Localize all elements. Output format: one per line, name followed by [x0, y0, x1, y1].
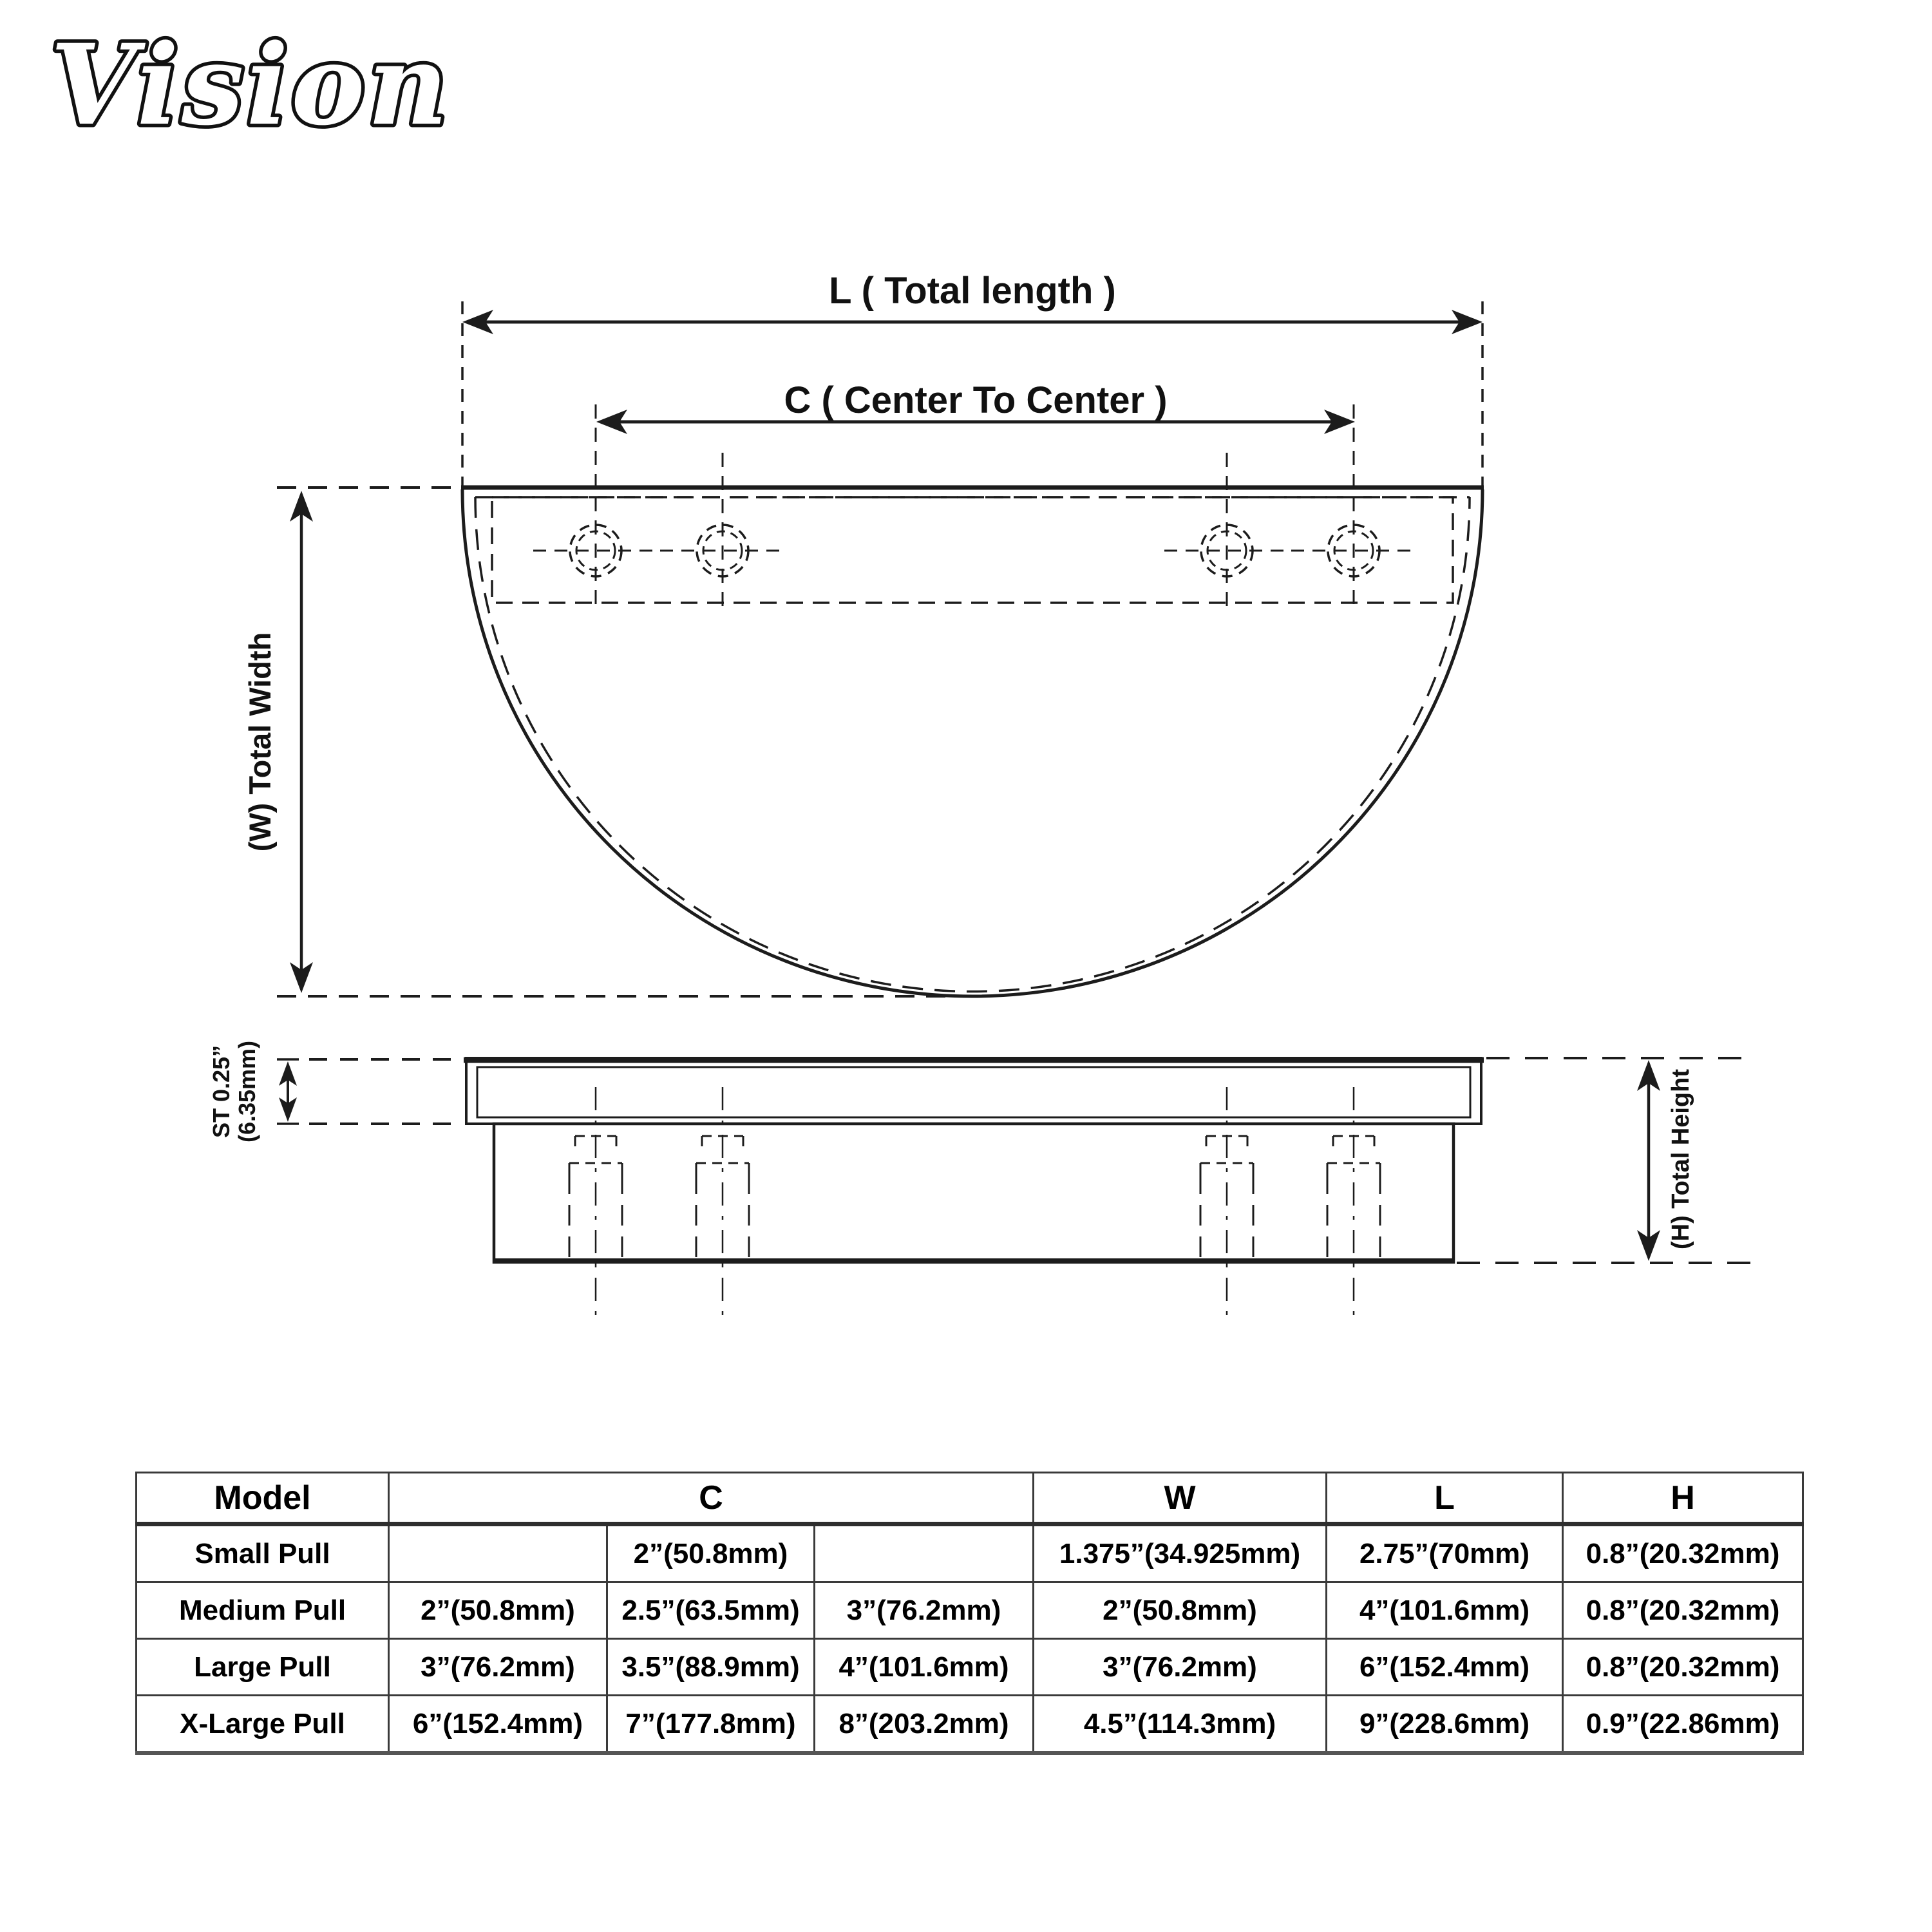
value-c3: 4”(101.6mm) [815, 1639, 1034, 1696]
value-w: 3”(76.2mm) [1034, 1639, 1327, 1696]
screw-holes [533, 404, 1416, 612]
dim-plate-thickness: ST 0.25” (6.35mm) [208, 1041, 464, 1142]
value-c2: 7”(177.8mm) [607, 1696, 815, 1754]
header-c: C [389, 1473, 1034, 1524]
model-name: Large Pull [137, 1639, 389, 1696]
table-row-large-pull: Large Pull 3”(76.2mm) 3.5”(88.9mm) 4”(10… [137, 1639, 1803, 1696]
screw-section [696, 1087, 749, 1315]
value-w: 4.5”(114.3mm) [1034, 1696, 1327, 1754]
value-w: 2”(50.8mm) [1034, 1582, 1327, 1639]
dim-total-height: (H) Total Height [1457, 1058, 1750, 1263]
spec-table-container: Model C W L H Small Pull 2”(50.8mm) 1.37… [135, 1472, 1804, 1755]
screw-hole [1164, 453, 1289, 612]
value-l: 2.75”(70mm) [1327, 1524, 1563, 1582]
value-h: 0.8”(20.32mm) [1563, 1524, 1803, 1582]
value-h: 0.9”(22.86mm) [1563, 1696, 1803, 1754]
dim-plate-thickness-label-line2: (6.35mm) [234, 1041, 260, 1142]
header-model: Model [137, 1473, 389, 1524]
dim-total-width-label: (W) Total Width [243, 632, 277, 852]
screw-hole [1291, 404, 1416, 612]
value-l: 6”(152.4mm) [1327, 1639, 1563, 1696]
model-name: Medium Pull [137, 1582, 389, 1639]
header-h: H [1563, 1473, 1803, 1524]
table-row-medium-pull: Medium Pull 2”(50.8mm) 2.5”(63.5mm) 3”(7… [137, 1582, 1803, 1639]
brand-logo: Vision [50, 19, 451, 150]
table-row-small-pull: Small Pull 2”(50.8mm) 1.375”(34.925mm) 2… [137, 1524, 1803, 1582]
dim-total-length: L ( Total length ) [462, 270, 1482, 487]
dim-total-length-label: L ( Total length ) [829, 270, 1116, 312]
table-row-xlarge-pull: X-Large Pull 6”(152.4mm) 7”(177.8mm) 8”(… [137, 1696, 1803, 1754]
page: { "logo": "Vision", "front_view": { "dim… [0, 0, 1932, 1932]
value-c1: 6”(152.4mm) [389, 1696, 607, 1754]
value-w: 1.375”(34.925mm) [1034, 1524, 1327, 1582]
dim-center-to-center: C ( Center To Center ) [596, 379, 1355, 434]
screw-section [569, 1087, 622, 1315]
value-c1: 3”(76.2mm) [389, 1639, 607, 1696]
screw-section [1200, 1087, 1253, 1315]
dimensions-table: Model C W L H Small Pull 2”(50.8mm) 1.37… [135, 1472, 1804, 1755]
value-c1 [389, 1524, 607, 1582]
side-view: ST 0.25” (6.35mm) (H) Total Height [208, 1041, 1750, 1315]
value-h: 0.8”(20.32mm) [1563, 1582, 1803, 1639]
value-c2: 2.5”(63.5mm) [607, 1582, 815, 1639]
value-c2: 3.5”(88.9mm) [607, 1639, 815, 1696]
dim-total-height-label: (H) Total Height [1667, 1069, 1694, 1249]
front-view: L ( Total length ) C ( Center To Center … [243, 270, 1484, 996]
pull-front-outline [461, 488, 1484, 996]
technical-drawing: Vision L ( Total length ) C ( Center To … [0, 0, 1932, 1472]
mounting-zone-outline [492, 497, 1453, 603]
model-name: X-Large Pull [137, 1696, 389, 1754]
value-h: 0.8”(20.32mm) [1563, 1639, 1803, 1696]
screw-section [1327, 1087, 1380, 1315]
value-l: 9”(228.6mm) [1327, 1696, 1563, 1754]
value-c2: 2”(50.8mm) [607, 1524, 815, 1582]
dim-total-width: (W) Total Width [243, 488, 962, 996]
mounting-base [493, 1124, 1455, 1262]
dim-plate-thickness-label-line1: ST 0.25” [208, 1045, 234, 1138]
value-c1: 2”(50.8mm) [389, 1582, 607, 1639]
screw-hole [660, 453, 785, 612]
header-l: L [1327, 1473, 1563, 1524]
dim-center-to-center-label: C ( Center To Center ) [784, 379, 1167, 421]
header-w: W [1034, 1473, 1327, 1524]
pull-side-plate [464, 1058, 1484, 1124]
value-l: 4”(101.6mm) [1327, 1582, 1563, 1639]
value-c3: 3”(76.2mm) [815, 1582, 1034, 1639]
table-header-row: Model C W L H [137, 1473, 1803, 1524]
model-name: Small Pull [137, 1524, 389, 1582]
hidden-screws [569, 1087, 1380, 1315]
value-c3: 8”(203.2mm) [815, 1696, 1034, 1754]
value-c3 [815, 1524, 1034, 1582]
screw-hole [533, 404, 658, 612]
